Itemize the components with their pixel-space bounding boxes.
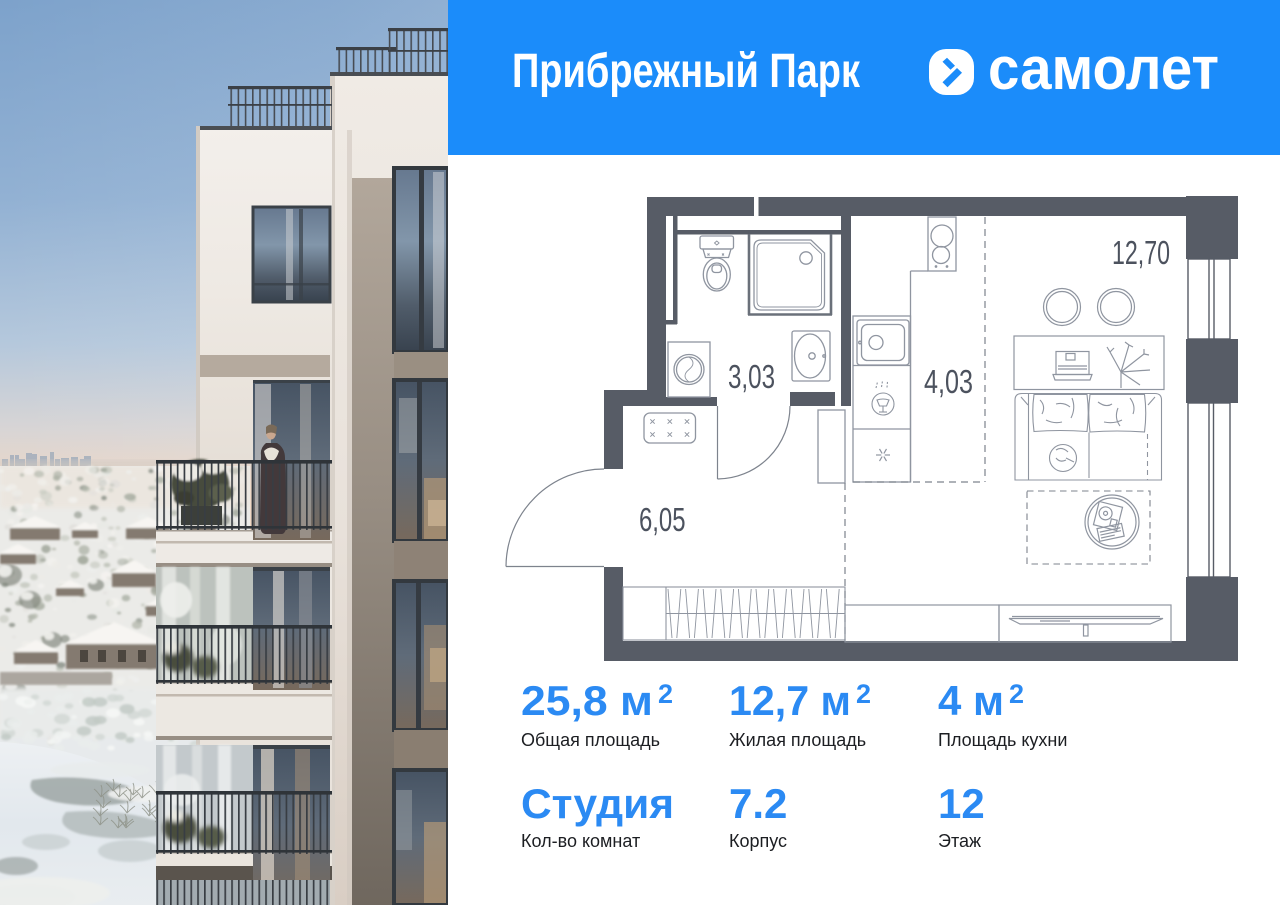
svg-text:4 м: 4 м (938, 677, 1004, 724)
svg-text:4,03: 4,03 (924, 363, 973, 400)
svg-text:Общая площадь: Общая площадь (521, 730, 660, 750)
svg-text:2: 2 (856, 679, 871, 709)
svg-text:12,7 м: 12,7 м (729, 677, 851, 724)
svg-text:25,8 м: 25,8 м (521, 677, 653, 724)
svg-text:Этаж: Этаж (938, 831, 981, 851)
svg-text:7.2: 7.2 (729, 780, 787, 827)
svg-text:6,05: 6,05 (639, 501, 686, 538)
svg-text:2: 2 (658, 679, 673, 709)
svg-text:Корпус: Корпус (729, 831, 787, 851)
svg-text:3,03: 3,03 (728, 358, 775, 395)
svg-text:Жилая площадь: Жилая площадь (729, 730, 866, 750)
svg-text:Площадь кухни: Площадь кухни (938, 730, 1067, 750)
svg-text:2: 2 (1009, 679, 1024, 709)
svg-text:12,70: 12,70 (1112, 234, 1170, 271)
svg-text:Студия: Студия (521, 780, 674, 827)
svg-text:12: 12 (938, 780, 985, 827)
svg-text:Кол-во комнат: Кол-во комнат (521, 831, 640, 851)
